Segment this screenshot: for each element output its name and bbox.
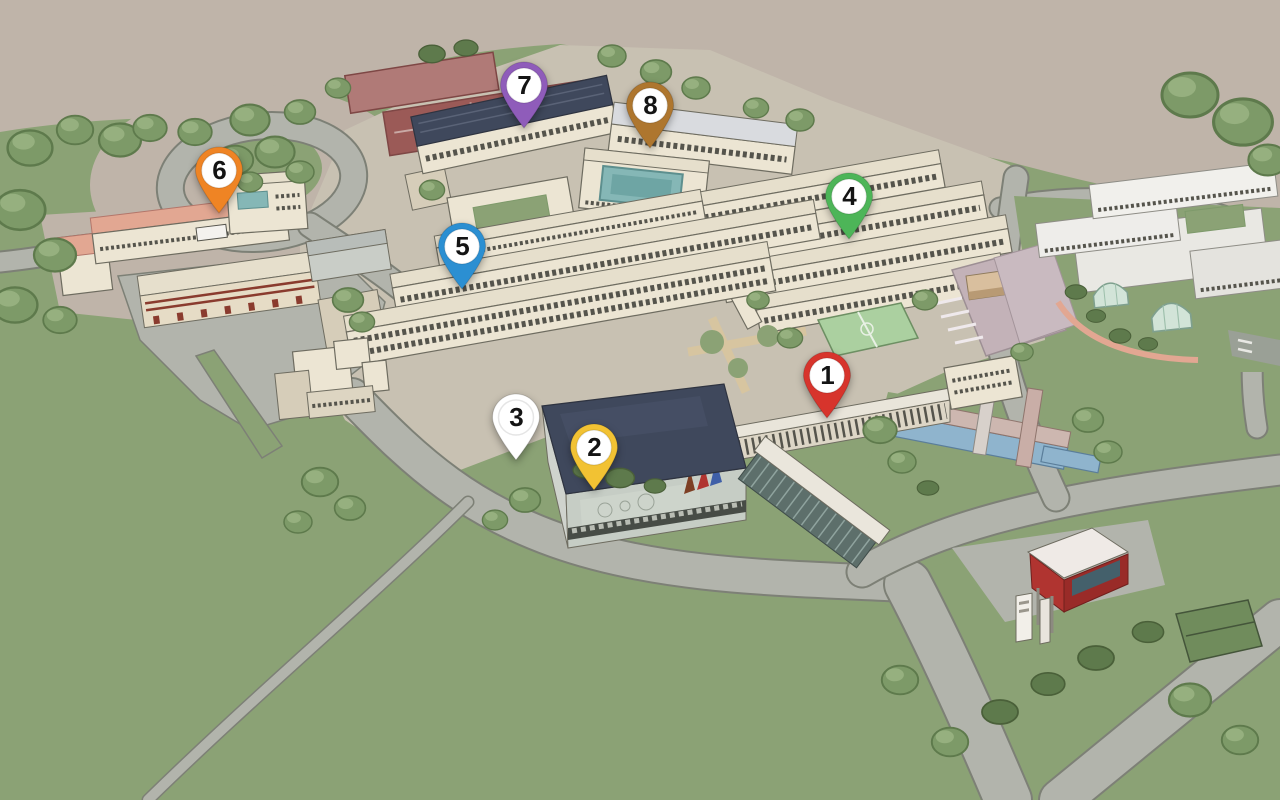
pin-number: 5: [455, 231, 468, 262]
pin-number: 2: [587, 432, 600, 463]
pin-number: 1: [820, 360, 833, 391]
map-pin-2[interactable]: 2: [567, 422, 621, 492]
map-pin-5[interactable]: 5: [435, 221, 489, 291]
map-pin-7[interactable]: 7: [497, 60, 551, 130]
map-pin-8[interactable]: 8: [623, 80, 677, 150]
pin-number: 3: [509, 402, 522, 433]
campus-map: 1 2 3 4 5 6 7 8: [0, 0, 1280, 800]
pin-number: 4: [842, 181, 855, 212]
map-pin-3[interactable]: 3: [489, 392, 543, 462]
pin-number: 7: [517, 70, 530, 101]
map-pin-4[interactable]: 4: [822, 171, 876, 241]
map-pin-6[interactable]: 6: [192, 145, 246, 215]
pin-number: 6: [212, 155, 225, 186]
map-pin-1[interactable]: 1: [800, 350, 854, 420]
pin-number: 8: [643, 90, 656, 121]
